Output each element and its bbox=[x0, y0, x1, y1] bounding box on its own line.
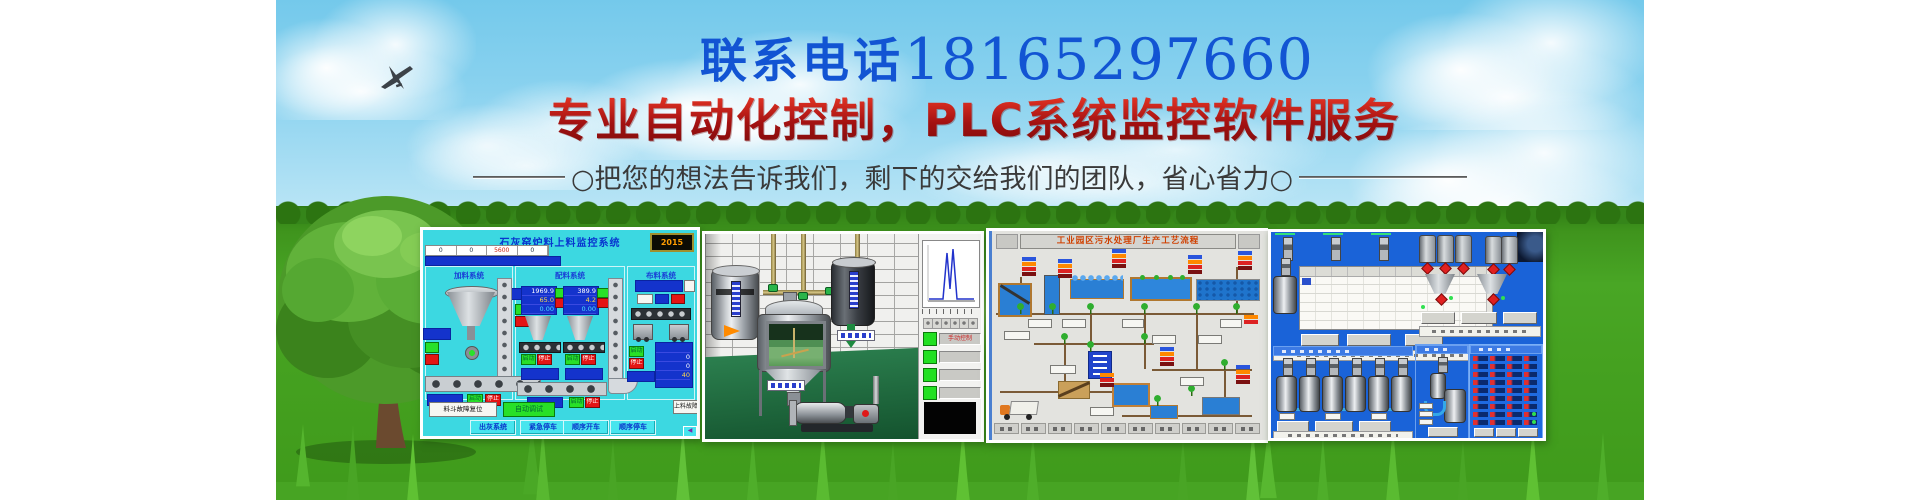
tank bbox=[1276, 376, 1297, 412]
valve-stack bbox=[1306, 358, 1316, 376]
silo bbox=[1501, 236, 1518, 264]
truck-icon bbox=[1000, 397, 1040, 419]
tank-cap bbox=[712, 265, 760, 277]
plant-icon bbox=[1140, 275, 1145, 280]
slot bbox=[939, 387, 981, 399]
phone-label: 联系电话 bbox=[700, 34, 904, 89]
silo bbox=[1437, 235, 1454, 263]
trend-curve bbox=[923, 241, 979, 307]
screenshot-kiln-scada: 石灰窑炉料上料监控系统 2015 0 0 5600 0 加料系统 配料系统 布料… bbox=[420, 227, 700, 439]
green-indicator bbox=[1421, 305, 1425, 309]
value: 0 bbox=[656, 362, 690, 371]
valve-icon bbox=[1061, 333, 1068, 344]
valve-icon bbox=[1141, 303, 1148, 314]
screenshot-batching-scada bbox=[1268, 229, 1546, 441]
green-indicator bbox=[1532, 412, 1536, 416]
valve-stack bbox=[1331, 237, 1341, 261]
label-box bbox=[655, 294, 669, 304]
valve-icon bbox=[1087, 303, 1094, 314]
pump-assembly bbox=[793, 392, 883, 434]
valve-icon bbox=[1141, 333, 1148, 344]
alarm-row bbox=[1473, 412, 1537, 417]
status-stack bbox=[1238, 251, 1252, 271]
bottom-button-strip bbox=[994, 423, 1260, 434]
small-pool bbox=[1150, 405, 1178, 419]
status-stack bbox=[1188, 255, 1202, 275]
silo bbox=[1455, 235, 1472, 263]
truck-bed bbox=[1009, 401, 1039, 415]
scene-label bbox=[837, 330, 875, 341]
control-rows bbox=[1093, 355, 1107, 375]
auto-debug-button: 自动调试 bbox=[503, 402, 555, 417]
silo bbox=[1419, 235, 1436, 263]
airplane-icon bbox=[376, 60, 418, 94]
start-button: 启动 bbox=[521, 354, 536, 365]
stop-button: 停止 bbox=[581, 354, 596, 365]
tick-strip bbox=[922, 309, 978, 314]
screenshot-mixer-hmi: 手动控制 bbox=[702, 231, 984, 442]
weigher-values: 1969.9 65.0 0.00 bbox=[521, 286, 557, 315]
status-stack bbox=[1236, 365, 1250, 385]
green-button bbox=[923, 368, 937, 382]
tank bbox=[1345, 376, 1366, 412]
bottom-button: 顺序开车 bbox=[563, 420, 609, 435]
screenshot-wastewater-scada: 工业园区污水处理厂生产工艺流程 bbox=[986, 228, 1268, 443]
alarm-row bbox=[1473, 404, 1537, 409]
start-button: 启动 bbox=[629, 346, 644, 357]
value: 1969.9 bbox=[522, 287, 554, 296]
bucket-elevator bbox=[608, 278, 623, 382]
pipe bbox=[1034, 343, 1154, 345]
pump-coupling bbox=[845, 406, 853, 418]
status-stack bbox=[1100, 373, 1114, 388]
grit-chamber bbox=[1070, 279, 1124, 299]
strip-button bbox=[1182, 423, 1207, 434]
red-indicator bbox=[862, 410, 869, 417]
value: 40 bbox=[656, 371, 690, 380]
status-strip bbox=[1273, 431, 1413, 438]
bottom-button: 出灰系统 bbox=[470, 420, 516, 435]
aeration-tank bbox=[1130, 277, 1192, 301]
bottom-button: 顺序停车 bbox=[610, 420, 656, 435]
bucket-elevator bbox=[497, 278, 512, 378]
tank bbox=[1299, 376, 1320, 412]
headline: 专业自动化控制，PLC系统监控软件服务 bbox=[548, 84, 1401, 149]
valve-icon bbox=[1188, 385, 1195, 396]
tag-label bbox=[1050, 365, 1076, 374]
pipe bbox=[996, 313, 1254, 315]
tagline: ○把您的想法告诉我们，剩下的交给我们的团队，省心省力○ bbox=[470, 157, 1470, 196]
pump-pipe bbox=[873, 376, 879, 404]
black-display bbox=[924, 402, 976, 434]
chain-conveyor bbox=[631, 308, 691, 320]
alarm-row bbox=[1473, 372, 1537, 377]
valve-stack bbox=[1438, 357, 1448, 373]
toolbar-icon bbox=[968, 318, 978, 329]
weigher-values: 389.9 4.2 0.00 bbox=[563, 286, 599, 315]
strip-button bbox=[1128, 423, 1153, 434]
valve-icon bbox=[1154, 395, 1161, 406]
tag-label bbox=[1371, 413, 1387, 420]
alarm-row bbox=[1473, 364, 1537, 369]
alarm-row bbox=[1473, 396, 1537, 401]
scada1-clock: 2015 bbox=[650, 233, 694, 252]
scada3-title: 工业园区污水处理厂生产工艺流程 bbox=[1020, 234, 1236, 249]
inlet-pool bbox=[998, 283, 1032, 317]
photo-patch bbox=[1517, 232, 1543, 262]
plant-icon bbox=[1154, 275, 1159, 280]
chain-conveyor bbox=[563, 342, 605, 353]
chain-conveyor bbox=[519, 342, 561, 353]
green-indicator bbox=[1501, 296, 1505, 300]
status-stack bbox=[1022, 257, 1036, 277]
valve-stack bbox=[1398, 358, 1408, 376]
start-indicator bbox=[425, 342, 439, 353]
alarm-row bbox=[1473, 388, 1537, 393]
dist-values: 0 0 40 bbox=[655, 342, 693, 388]
section-button bbox=[1461, 312, 1497, 324]
storage-tank-left bbox=[711, 268, 759, 340]
green-indicator bbox=[1449, 296, 1453, 300]
valve-icon bbox=[465, 346, 479, 360]
section-button bbox=[1421, 312, 1455, 324]
sedimentation-tank bbox=[1196, 279, 1260, 301]
truck-wheel bbox=[1004, 414, 1010, 420]
valve-icon bbox=[1221, 359, 1228, 370]
valve-icon bbox=[768, 284, 778, 292]
tag-label bbox=[1122, 319, 1144, 328]
cart-icon bbox=[669, 324, 689, 340]
promo-banner: 联系电话18165297660 专业自动化控制，PLC系统监控软件服务 ○把您的… bbox=[0, 0, 1920, 500]
pipe bbox=[1090, 313, 1092, 343]
plant-icon bbox=[1180, 275, 1185, 280]
vessel-leg bbox=[759, 370, 762, 416]
status-stack bbox=[1160, 347, 1174, 367]
stop-indicator bbox=[671, 294, 685, 304]
trend-chart bbox=[922, 240, 980, 308]
strip-button bbox=[1208, 423, 1233, 434]
valve-stack bbox=[1283, 358, 1293, 376]
tag-label bbox=[1325, 413, 1341, 420]
green-indicator bbox=[1532, 420, 1536, 424]
label-box bbox=[423, 328, 451, 340]
status-stack bbox=[1244, 315, 1258, 325]
plant-icon bbox=[1168, 275, 1173, 280]
tagline-text: ○把您的想法告诉我们，剩下的交给我们的团队，省心省力○ bbox=[571, 157, 1293, 196]
scada1-blue-strip bbox=[425, 256, 561, 266]
green-button bbox=[923, 350, 937, 364]
valve-stack bbox=[1379, 237, 1389, 261]
table-button bbox=[1347, 334, 1391, 346]
alarm-row bbox=[1473, 380, 1537, 385]
pump-flange bbox=[789, 400, 797, 426]
status-strip bbox=[1419, 326, 1541, 337]
cell: 0 bbox=[518, 246, 549, 255]
scada1-value-strip: 0 0 5600 0 bbox=[425, 245, 549, 256]
valve-icon bbox=[1049, 303, 1056, 314]
status-stack bbox=[1112, 249, 1126, 269]
pump-body bbox=[793, 402, 847, 424]
value: 65.0 bbox=[522, 296, 554, 305]
phone-heading: 联系电话18165297660 bbox=[700, 22, 1314, 93]
tag-label bbox=[1198, 335, 1222, 344]
tank-cap bbox=[832, 257, 876, 268]
value: 0 bbox=[656, 353, 690, 362]
tank bbox=[1444, 389, 1466, 423]
valve-icon bbox=[1233, 303, 1240, 314]
header-tab bbox=[1238, 234, 1260, 249]
stop-button: 停止 bbox=[629, 358, 644, 369]
pump-motor bbox=[853, 404, 879, 424]
section-title-bar bbox=[1470, 345, 1542, 354]
start-button: 启动 bbox=[569, 397, 584, 408]
truck-wheel bbox=[1026, 414, 1032, 420]
strip-button bbox=[1021, 423, 1046, 434]
cell: 0 bbox=[457, 246, 488, 255]
cell: 5600 bbox=[487, 246, 518, 255]
tag-label bbox=[1028, 319, 1052, 328]
selected-cell bbox=[1302, 278, 1311, 285]
green-tag bbox=[1371, 233, 1391, 235]
green-button bbox=[923, 332, 937, 346]
strip-button bbox=[1155, 423, 1180, 434]
section-button bbox=[1503, 312, 1537, 324]
inlet-screw bbox=[1000, 284, 1030, 305]
tag-label bbox=[1004, 331, 1030, 340]
arrow-button: ◀ bbox=[683, 426, 697, 436]
green-tag bbox=[1323, 233, 1343, 235]
slot bbox=[939, 351, 981, 363]
tagline-left-rule bbox=[473, 176, 565, 178]
valve-stack bbox=[1352, 358, 1362, 376]
level-gauge bbox=[849, 271, 859, 309]
label-box bbox=[635, 280, 683, 292]
start-button: 启动 bbox=[565, 354, 580, 365]
tank bbox=[1273, 276, 1297, 314]
section-title-bar bbox=[1416, 345, 1468, 354]
clarifier bbox=[1112, 383, 1150, 407]
valve-icon bbox=[798, 292, 808, 300]
valve-stack bbox=[1375, 358, 1385, 376]
slot bbox=[939, 369, 981, 381]
tank bbox=[1391, 376, 1412, 412]
stop-button: 停止 bbox=[537, 354, 552, 365]
green-tag bbox=[1275, 233, 1295, 235]
tag-label bbox=[1152, 335, 1176, 344]
hopper-icon bbox=[467, 326, 475, 340]
section-title-bar bbox=[1273, 346, 1413, 356]
vessel-body bbox=[757, 314, 831, 372]
alarm-row bbox=[1473, 420, 1537, 425]
pipe bbox=[801, 234, 806, 298]
tagline-right-rule bbox=[1299, 176, 1467, 178]
tag-label bbox=[1279, 413, 1295, 420]
water-scallops bbox=[1071, 275, 1123, 281]
alarm-button bbox=[1496, 428, 1516, 437]
value-box bbox=[637, 294, 653, 304]
level-gauge bbox=[731, 281, 741, 317]
stirrer-blade bbox=[781, 349, 809, 358]
label-box bbox=[627, 371, 655, 382]
alarm-panel bbox=[1469, 344, 1543, 438]
fault-reset-button: 料斗故障复位 bbox=[429, 402, 497, 417]
value: 4.2 bbox=[564, 296, 596, 305]
strip-button bbox=[1101, 423, 1126, 434]
strip-button bbox=[1235, 423, 1260, 434]
table-button bbox=[1301, 334, 1339, 346]
valve-icon bbox=[1087, 341, 1094, 352]
valve-icon bbox=[1193, 303, 1200, 314]
tank bbox=[1368, 376, 1389, 412]
alarm-button bbox=[1518, 428, 1538, 437]
bottom-button: 紧急停车 bbox=[520, 420, 566, 435]
orange-arrow-icon bbox=[724, 325, 740, 337]
strip-button bbox=[1048, 423, 1073, 434]
valve-stack bbox=[1329, 358, 1339, 376]
red-valve-icon bbox=[1503, 263, 1516, 276]
manual-control-label: 手动控制 bbox=[939, 333, 981, 345]
header-tab bbox=[996, 234, 1018, 249]
alarm-button bbox=[1474, 428, 1494, 437]
blue-button bbox=[521, 368, 559, 380]
value: 0.00 bbox=[564, 305, 596, 314]
section-button bbox=[1428, 427, 1458, 437]
stop-button: 停止 bbox=[585, 397, 600, 408]
mixer-scene bbox=[705, 234, 918, 439]
tag-label bbox=[1090, 407, 1114, 416]
screen-unit bbox=[1058, 381, 1090, 399]
silo bbox=[1485, 236, 1502, 264]
outlet-pool bbox=[1202, 397, 1240, 415]
stop-indicator bbox=[425, 354, 439, 365]
pump-base bbox=[801, 424, 873, 432]
tag-label bbox=[1180, 377, 1204, 386]
incline-screen bbox=[1058, 381, 1090, 398]
conveyor bbox=[517, 382, 607, 396]
value: 0.00 bbox=[522, 305, 554, 314]
sub-panel bbox=[1415, 344, 1469, 438]
alarm-row bbox=[1473, 356, 1537, 361]
tag-label bbox=[1220, 319, 1242, 328]
tag-label bbox=[1419, 419, 1433, 425]
storage-tank-right bbox=[831, 260, 875, 326]
cell: 0 bbox=[426, 246, 457, 255]
scene-label bbox=[767, 380, 805, 391]
value-box bbox=[684, 280, 695, 292]
strip-button bbox=[1074, 423, 1099, 434]
status-stack bbox=[1058, 259, 1072, 279]
valve-icon bbox=[1017, 303, 1024, 314]
tag-label bbox=[1419, 411, 1433, 417]
tank bbox=[1322, 376, 1343, 412]
blue-button bbox=[565, 368, 603, 380]
mixer-sidebar: 手动控制 bbox=[918, 234, 981, 439]
strip-button bbox=[994, 423, 1019, 434]
vessel-window bbox=[766, 321, 826, 369]
tag-label bbox=[1419, 403, 1433, 409]
green-button bbox=[923, 386, 937, 400]
value: 389.9 bbox=[564, 287, 596, 296]
pipe bbox=[1122, 415, 1252, 417]
feed-fault-button: 上料故障 bbox=[673, 400, 697, 414]
valve-stack bbox=[1281, 258, 1291, 276]
tag-label bbox=[1062, 319, 1086, 328]
cart-icon bbox=[633, 324, 653, 340]
